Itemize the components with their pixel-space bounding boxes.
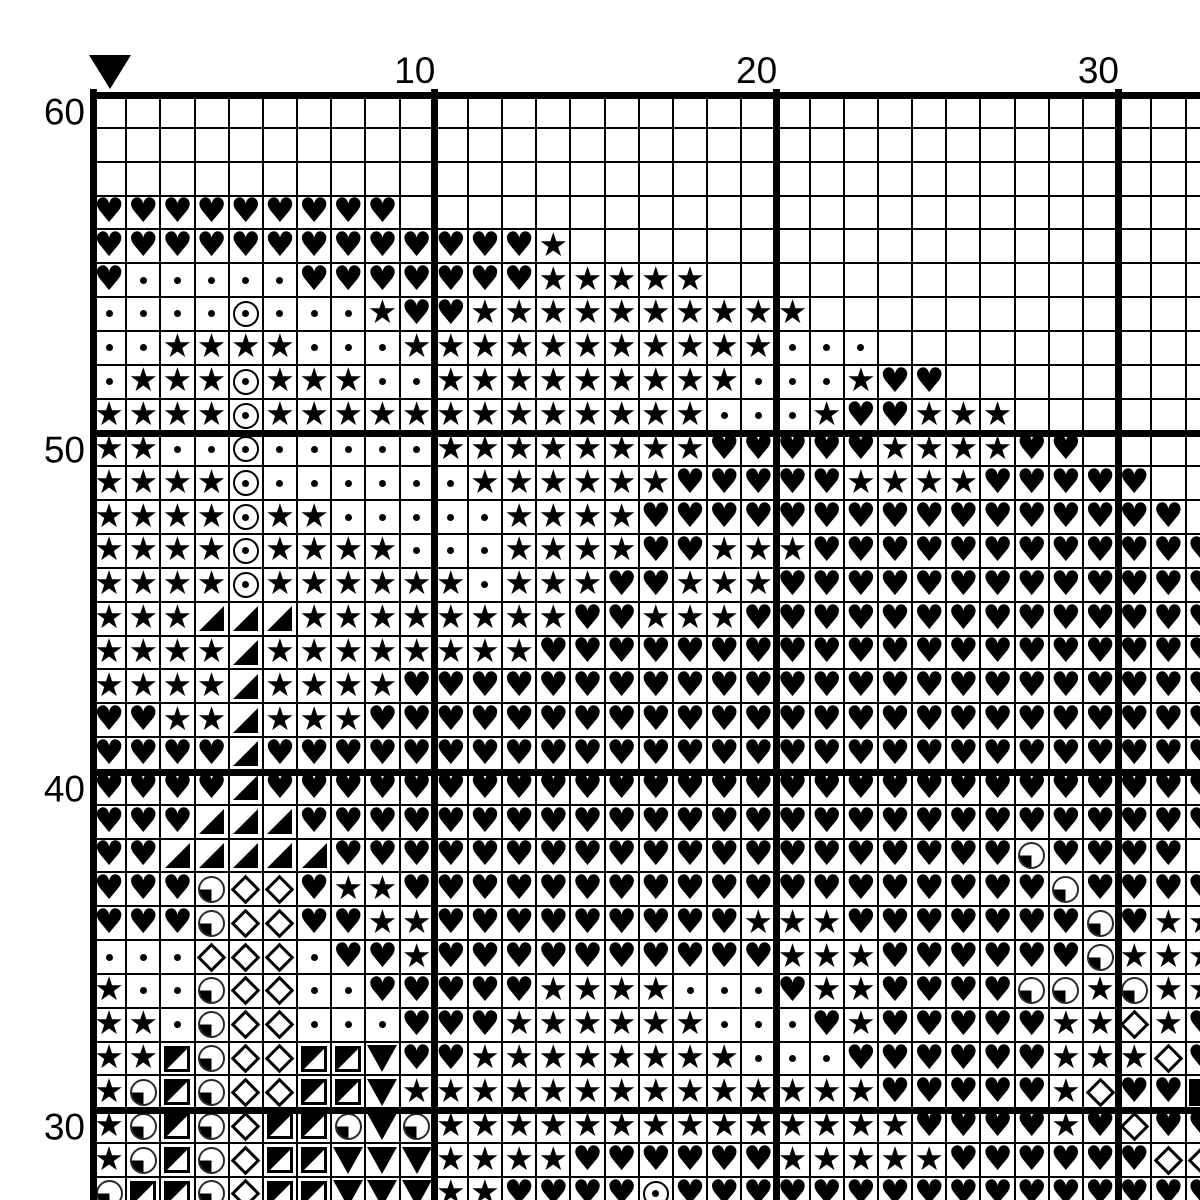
heart-icon: ♥ — [299, 194, 329, 228]
star-icon: ★ — [744, 566, 774, 599]
grid-cell — [230, 637, 264, 671]
heart-icon: ♥ — [914, 499, 944, 533]
grid-cell: ★ — [1118, 941, 1152, 975]
dot-icon — [721, 1021, 728, 1028]
heart-icon: ♥ — [1016, 702, 1046, 736]
grid-cell — [640, 197, 674, 231]
grid-cell: ♥ — [503, 1178, 537, 1200]
star-icon: ★ — [573, 1006, 603, 1039]
grid-cell: ♥ — [1187, 1110, 1200, 1144]
heart-icon: ♥ — [982, 905, 1012, 939]
star-icon: ★ — [539, 499, 569, 532]
heart-icon: ♥ — [914, 668, 944, 702]
half-square-icon — [164, 1046, 190, 1072]
diamond-icon — [1085, 1078, 1115, 1108]
diamond-icon — [231, 1111, 261, 1141]
star-icon: ★ — [914, 465, 944, 498]
cross-stitch-chart: 102030 60504030 ♥♥♥♥♥♥♥♥♥♥♥♥♥♥♥♥♥♥♥♥♥♥★♥… — [0, 0, 1200, 1200]
half-square-icon — [164, 1147, 190, 1173]
star-icon: ★ — [128, 397, 158, 430]
heart-icon: ♥ — [641, 567, 671, 601]
star-icon: ★ — [504, 1006, 534, 1039]
half-square-icon — [301, 1147, 327, 1173]
star-icon: ★ — [744, 1074, 774, 1107]
grid-cell — [264, 873, 298, 907]
lower-right-triangle-icon — [267, 843, 292, 868]
dot-icon — [208, 446, 215, 453]
grid-cell — [1050, 332, 1084, 366]
grid-cell — [1152, 230, 1186, 264]
heart-icon: ♥ — [948, 871, 978, 905]
quarter-circle-icon — [130, 1147, 157, 1174]
grid-cell — [230, 975, 264, 1009]
heart-icon: ♥ — [675, 736, 705, 770]
grid-cell: ★ — [93, 1144, 127, 1178]
dot-icon — [276, 310, 283, 317]
grid-cell — [264, 95, 298, 129]
dot-icon — [311, 310, 318, 317]
heart-icon: ♥ — [538, 634, 568, 668]
grid-cell — [845, 163, 879, 197]
bold-horizontal-line — [90, 92, 1200, 99]
half-square-icon — [335, 1046, 361, 1072]
quarter-circle-icon — [1087, 910, 1114, 937]
star-icon: ★ — [94, 566, 124, 599]
star-icon: ★ — [880, 465, 910, 498]
heart-icon: ♥ — [777, 736, 807, 770]
grid-cell — [298, 1009, 332, 1043]
heart-icon: ♥ — [880, 398, 910, 432]
heart-icon: ♥ — [162, 228, 192, 262]
grid-cell — [1118, 163, 1152, 197]
dot-icon — [311, 344, 318, 351]
grid-cell — [879, 95, 913, 129]
grid-cell — [264, 806, 298, 840]
heart-icon: ♥ — [1153, 1176, 1183, 1200]
pattern-center-marker-icon — [89, 55, 131, 89]
grid-cell — [1050, 298, 1084, 332]
grid-cell — [981, 230, 1015, 264]
grid-cell — [196, 1178, 230, 1200]
star-icon: ★ — [197, 499, 227, 532]
grid-cell — [1118, 129, 1152, 163]
grid-cell — [332, 467, 366, 501]
grid-cell — [366, 1076, 400, 1110]
star-icon: ★ — [402, 939, 432, 972]
star-icon: ★ — [299, 363, 329, 396]
grid-cell — [879, 197, 913, 231]
grid-cell: ♥ — [161, 230, 195, 264]
star-icon: ★ — [299, 668, 329, 701]
heart-icon: ♥ — [367, 973, 397, 1007]
grid-cell — [127, 1076, 161, 1110]
heart-icon: ♥ — [948, 499, 978, 533]
star-icon: ★ — [812, 939, 842, 972]
star-icon: ★ — [197, 668, 227, 701]
grid-cell — [230, 1110, 264, 1144]
star-icon: ★ — [94, 668, 124, 701]
star-icon: ★ — [504, 329, 534, 362]
heart-icon: ♥ — [94, 871, 124, 905]
diamond-icon — [1119, 1010, 1149, 1040]
heart-icon: ♥ — [675, 533, 705, 567]
grid-cell — [401, 1144, 435, 1178]
grid-cell: ★ — [1152, 1009, 1186, 1043]
grid-cell — [742, 95, 776, 129]
grid-cell — [264, 1110, 298, 1144]
quarter-circle-icon — [403, 1113, 430, 1140]
star-icon: ★ — [333, 871, 363, 904]
diamond-icon — [231, 1078, 261, 1108]
grid-cell — [401, 433, 435, 467]
star-icon: ★ — [436, 363, 466, 396]
lower-right-triangle-icon — [233, 809, 258, 834]
grid-cell: ♥ — [981, 1178, 1015, 1200]
diamond-icon — [231, 1044, 261, 1074]
star-icon: ★ — [539, 228, 569, 261]
dot-icon — [447, 480, 454, 487]
star-icon: ★ — [163, 600, 193, 633]
grid-cell — [127, 298, 161, 332]
heart-icon: ♥ — [1153, 702, 1183, 736]
heart-icon: ♥ — [914, 601, 944, 635]
grid-cell: ♥ — [1050, 840, 1084, 874]
star-icon: ★ — [675, 1040, 705, 1073]
star-icon: ★ — [709, 295, 739, 328]
heart-icon: ♥ — [811, 1007, 841, 1041]
grid-cell — [196, 129, 230, 163]
grid-cell: ♥ — [264, 230, 298, 264]
grid-cell — [401, 467, 435, 501]
star-icon: ★ — [265, 566, 295, 599]
heart-icon: ♥ — [606, 634, 636, 668]
heart-icon: ♥ — [470, 804, 500, 838]
grid-cell — [196, 1043, 230, 1077]
heart-icon: ♥ — [333, 939, 363, 973]
grid-cell — [332, 1110, 366, 1144]
star-icon: ★ — [94, 1006, 124, 1039]
dot-icon — [208, 310, 215, 317]
star-icon: ★ — [470, 465, 500, 498]
star-icon: ★ — [573, 499, 603, 532]
heart-icon: ♥ — [401, 871, 431, 905]
diamond-icon — [1154, 1044, 1184, 1074]
star-icon: ★ — [197, 566, 227, 599]
grid-cell — [947, 129, 981, 163]
heart-icon: ♥ — [538, 871, 568, 905]
quarter-circle-icon — [1018, 842, 1045, 869]
star-icon: ★ — [504, 363, 534, 396]
grid-cell — [537, 163, 571, 197]
star-icon: ★ — [539, 1040, 569, 1073]
heart-icon: ♥ — [401, 837, 431, 871]
diamond-icon — [231, 1145, 261, 1175]
star-icon: ★ — [197, 465, 227, 498]
grid-cell — [366, 1144, 400, 1178]
heart-icon: ♥ — [982, 702, 1012, 736]
grid-cell — [1084, 230, 1118, 264]
heart-icon: ♥ — [1051, 939, 1081, 973]
grid-cell: ★ — [469, 1178, 503, 1200]
lower-right-triangle-icon — [199, 606, 224, 631]
quarter-circle-icon — [198, 910, 225, 937]
heart-icon: ♥ — [846, 499, 876, 533]
heart-icon: ♥ — [1016, 905, 1046, 939]
grid-cell: ♥ — [298, 264, 332, 298]
heart-icon: ♥ — [401, 228, 431, 262]
heart-icon: ♥ — [401, 804, 431, 838]
star-icon: ★ — [402, 329, 432, 362]
quarter-circle-icon — [198, 1045, 225, 1072]
grid-cell — [332, 1076, 366, 1110]
grid-cell: ♥ — [742, 1178, 776, 1200]
grid-cell — [1118, 366, 1152, 400]
grid-cell: ♥ — [606, 1178, 640, 1200]
grid-cell — [913, 264, 947, 298]
grid-cell — [947, 163, 981, 197]
half-square-icon — [301, 1181, 327, 1200]
grid-cell — [366, 1178, 400, 1200]
heart-icon: ♥ — [641, 804, 671, 838]
star-icon: ★ — [1154, 939, 1184, 972]
grid-cell — [776, 197, 810, 231]
quarter-circle-icon — [198, 1079, 225, 1106]
heart-icon: ♥ — [333, 736, 363, 770]
dot-icon — [311, 987, 318, 994]
grid-cell — [230, 907, 264, 941]
star-icon: ★ — [641, 1074, 671, 1107]
bold-horizontal-line — [90, 1107, 1200, 1114]
row-label: 30 — [25, 1109, 85, 1146]
heart-icon: ♥ — [1085, 533, 1115, 567]
grid-cell — [230, 433, 264, 467]
star-icon: ★ — [539, 600, 569, 633]
lower-right-triangle-icon — [267, 606, 292, 631]
grid-cell — [1118, 230, 1152, 264]
heart-icon: ♥ — [675, 871, 705, 905]
heart-icon: ♥ — [675, 634, 705, 668]
grid-cell — [161, 129, 195, 163]
heart-icon: ♥ — [606, 736, 636, 770]
grid-cell — [264, 1043, 298, 1077]
star-icon: ★ — [265, 329, 295, 362]
dot-icon — [174, 954, 181, 961]
heart-icon: ♥ — [675, 668, 705, 702]
heart-icon: ♥ — [675, 1176, 705, 1200]
heart-icon: ♥ — [743, 1142, 773, 1176]
star-icon: ★ — [539, 532, 569, 565]
grid-cell — [230, 670, 264, 704]
heart-icon: ♥ — [982, 837, 1012, 871]
heart-icon: ♥ — [265, 228, 295, 262]
star-icon: ★ — [504, 1142, 534, 1175]
grid-cell — [742, 129, 776, 163]
heart-icon: ♥ — [299, 228, 329, 262]
heart-icon: ♥ — [743, 634, 773, 668]
heart-icon: ♥ — [914, 905, 944, 939]
star-icon: ★ — [846, 1074, 876, 1107]
grid-cell — [196, 941, 230, 975]
heart-icon: ♥ — [128, 702, 158, 736]
grid-cell — [127, 941, 161, 975]
star-icon: ★ — [299, 702, 329, 735]
heart-icon: ♥ — [1119, 871, 1149, 905]
heart-icon: ♥ — [1016, 939, 1046, 973]
heart-icon: ♥ — [1085, 567, 1115, 601]
heart-icon: ♥ — [1119, 905, 1149, 939]
star-icon: ★ — [163, 465, 193, 498]
heart-icon: ♥ — [880, 634, 910, 668]
dot-icon — [140, 344, 147, 351]
star-icon: ★ — [675, 1074, 705, 1107]
dot-icon — [755, 1021, 762, 1028]
grid-cell — [1187, 298, 1200, 332]
heart-icon: ♥ — [538, 736, 568, 770]
star-icon: ★ — [299, 600, 329, 633]
dot-icon — [106, 310, 113, 317]
half-square-icon — [267, 1181, 293, 1200]
grid-cell — [503, 129, 537, 163]
grid-cell — [161, 1144, 195, 1178]
heart-icon: ♥ — [777, 668, 807, 702]
heart-icon: ♥ — [470, 262, 500, 296]
heart-icon: ♥ — [675, 1142, 705, 1176]
heart-icon: ♥ — [1051, 804, 1081, 838]
heart-icon: ♥ — [1051, 668, 1081, 702]
heart-icon: ♥ — [880, 533, 910, 567]
heart-icon: ♥ — [470, 973, 500, 1007]
heart-icon: ♥ — [572, 1142, 602, 1176]
grid-cell — [1050, 163, 1084, 197]
dot-icon — [447, 547, 454, 554]
grid-cell — [1084, 163, 1118, 197]
star-icon: ★ — [1154, 972, 1184, 1005]
lower-right-triangle-icon — [267, 809, 292, 834]
dot-icon — [447, 514, 454, 521]
heart-icon: ♥ — [675, 804, 705, 838]
heart-icon: ♥ — [333, 262, 363, 296]
grid-cell — [93, 332, 127, 366]
heart-icon: ♥ — [1153, 736, 1183, 770]
grid-cell — [1016, 264, 1050, 298]
grid-cell — [1118, 264, 1152, 298]
grid-cell — [674, 197, 708, 231]
star-icon: ★ — [607, 465, 637, 498]
grid-cell: ♥ — [196, 772, 230, 806]
dot-icon — [276, 446, 283, 453]
grid-cell: ★ — [776, 298, 810, 332]
heart-icon: ♥ — [880, 939, 910, 973]
heart-icon: ♥ — [504, 1176, 534, 1200]
grid-cell — [1118, 400, 1152, 434]
down-triangle-icon — [333, 1147, 363, 1174]
grid-cell — [776, 95, 810, 129]
star-icon: ★ — [641, 972, 671, 1005]
star-icon: ★ — [128, 532, 158, 565]
grid-cell — [1016, 163, 1050, 197]
quarter-circle-icon — [198, 876, 225, 903]
heart-icon: ♥ — [846, 905, 876, 939]
star-icon: ★ — [675, 262, 705, 295]
heart-icon: ♥ — [811, 702, 841, 736]
grid-cell — [1152, 433, 1186, 467]
dot-icon — [345, 480, 352, 487]
star-icon: ★ — [333, 668, 363, 701]
heart-icon: ♥ — [914, 634, 944, 668]
heart-icon: ♥ — [1153, 668, 1183, 702]
grid-cell — [981, 332, 1015, 366]
diamond-icon — [1154, 1145, 1184, 1175]
heart-icon: ♥ — [846, 567, 876, 601]
heart-icon: ♥ — [811, 804, 841, 838]
heart-icon: ♥ — [811, 736, 841, 770]
dot-icon — [379, 446, 386, 453]
heart-icon: ♥ — [162, 736, 192, 770]
star-icon: ★ — [128, 1040, 158, 1073]
grid-cell — [1016, 95, 1050, 129]
heart-icon: ♥ — [914, 1007, 944, 1041]
star-icon: ★ — [573, 262, 603, 295]
star-icon: ★ — [128, 363, 158, 396]
grid-cell — [640, 129, 674, 163]
grid-cell — [708, 197, 742, 231]
grid-cell — [811, 298, 845, 332]
star-icon: ★ — [539, 1074, 569, 1107]
grid-cell: ★ — [708, 366, 742, 400]
grid-cell — [742, 197, 776, 231]
star-icon: ★ — [436, 1074, 466, 1107]
grid-cell: ★ — [298, 400, 332, 434]
grid-cell — [230, 1009, 264, 1043]
grid-cell — [811, 163, 845, 197]
star-icon: ★ — [846, 1006, 876, 1039]
heart-icon: ♥ — [948, 736, 978, 770]
circled-dot-icon — [233, 403, 259, 429]
heart-icon: ♥ — [436, 1007, 466, 1041]
grid-cell: ♥ — [1118, 1076, 1152, 1110]
grid-cell — [640, 95, 674, 129]
star-icon: ★ — [197, 363, 227, 396]
heart-icon: ♥ — [1051, 837, 1081, 871]
grid-cell — [1152, 163, 1186, 197]
grid-cell — [1016, 129, 1050, 163]
heart-icon: ♥ — [880, 1041, 910, 1075]
heart-icon: ♥ — [948, 1142, 978, 1176]
grid-cell — [298, 433, 332, 467]
grid-cell: ♥ — [1187, 1178, 1200, 1200]
star-icon: ★ — [778, 295, 808, 328]
heart-icon: ♥ — [1016, 634, 1046, 668]
heart-icon: ♥ — [1016, 736, 1046, 770]
heart-icon: ♥ — [299, 905, 329, 939]
heart-icon: ♥ — [572, 634, 602, 668]
diamond-icon — [231, 1010, 261, 1040]
quarter-circle-icon — [96, 1180, 123, 1200]
dot-icon — [755, 1055, 762, 1062]
heart-icon: ♥ — [641, 736, 671, 770]
heart-icon: ♥ — [572, 702, 602, 736]
heart-icon: ♥ — [128, 837, 158, 871]
grid-cell — [1187, 366, 1200, 400]
grid-cell — [264, 975, 298, 1009]
heart-icon: ♥ — [1085, 702, 1115, 736]
heart-icon: ♥ — [1153, 601, 1183, 635]
star-icon: ★ — [709, 1074, 739, 1107]
heart-icon: ♥ — [333, 837, 363, 871]
heart-icon: ♥ — [846, 1176, 876, 1200]
heart-icon: ♥ — [1119, 1142, 1149, 1176]
heart-icon: ♥ — [880, 702, 910, 736]
